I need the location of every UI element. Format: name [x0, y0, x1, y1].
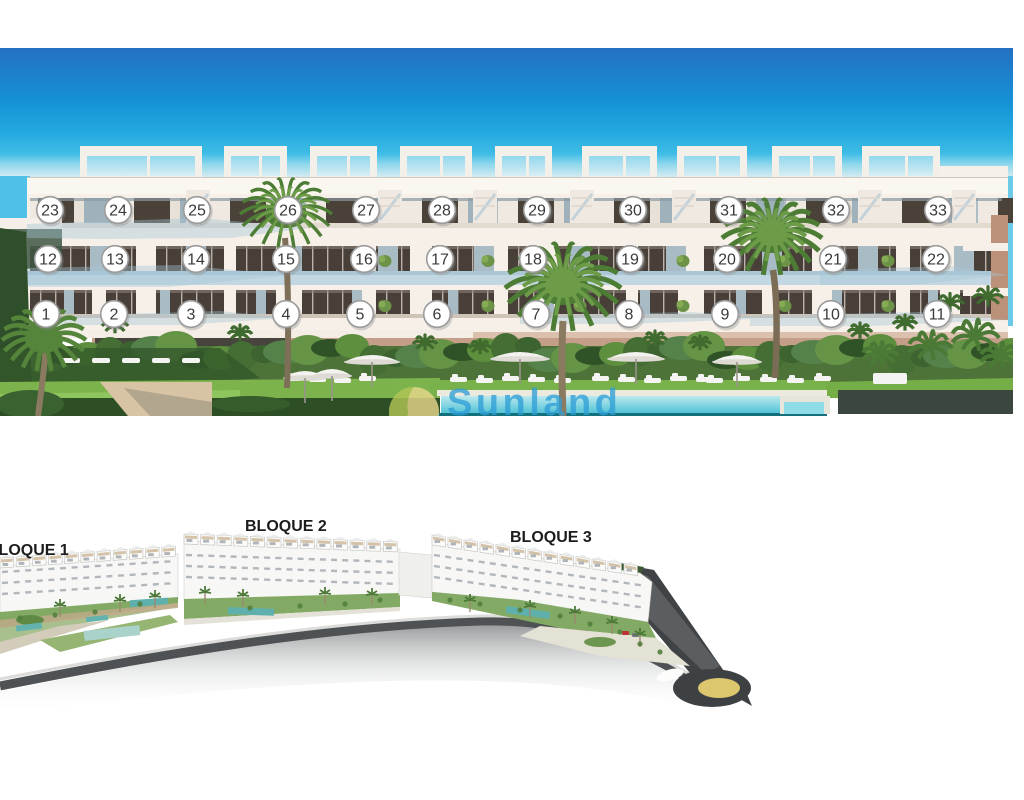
svg-text:14: 14	[187, 251, 205, 268]
svg-text:3: 3	[187, 306, 196, 323]
svg-text:19: 19	[621, 251, 639, 268]
svg-text:13: 13	[106, 251, 124, 268]
svg-text:BLOQUE 2: BLOQUE 2	[245, 518, 327, 535]
svg-text:9: 9	[721, 306, 730, 323]
svg-text:30: 30	[624, 202, 642, 219]
svg-text:26: 26	[279, 202, 297, 219]
svg-text:25: 25	[188, 202, 206, 219]
svg-text:22: 22	[927, 251, 945, 268]
svg-text:Sunland: Sunland	[447, 382, 621, 416]
svg-text:29: 29	[528, 202, 546, 219]
svg-text:15: 15	[277, 251, 295, 268]
svg-text:20: 20	[718, 251, 736, 268]
svg-text:17: 17	[431, 251, 449, 268]
svg-text:5: 5	[356, 306, 365, 323]
svg-text:1: 1	[42, 306, 51, 323]
svg-text:4: 4	[282, 306, 291, 323]
svg-text:2: 2	[110, 306, 119, 323]
svg-text:8: 8	[625, 306, 634, 323]
svg-text:31: 31	[720, 202, 738, 219]
svg-text:33: 33	[929, 202, 947, 219]
svg-text:7: 7	[532, 306, 541, 323]
svg-text:32: 32	[827, 202, 845, 219]
svg-text:10: 10	[822, 306, 840, 323]
svg-text:16: 16	[355, 251, 373, 268]
svg-text:23: 23	[41, 202, 59, 219]
svg-text:27: 27	[357, 202, 375, 219]
svg-text:BLOQUE 3: BLOQUE 3	[510, 529, 592, 546]
svg-text:24: 24	[109, 202, 127, 219]
svg-text:12: 12	[39, 251, 57, 268]
svg-text:11: 11	[929, 306, 946, 323]
svg-text:6: 6	[433, 306, 442, 323]
svg-text:BLOQUE 1: BLOQUE 1	[0, 542, 69, 559]
svg-text:18: 18	[524, 251, 542, 268]
svg-text:21: 21	[824, 251, 842, 268]
svg-text:28: 28	[433, 202, 451, 219]
